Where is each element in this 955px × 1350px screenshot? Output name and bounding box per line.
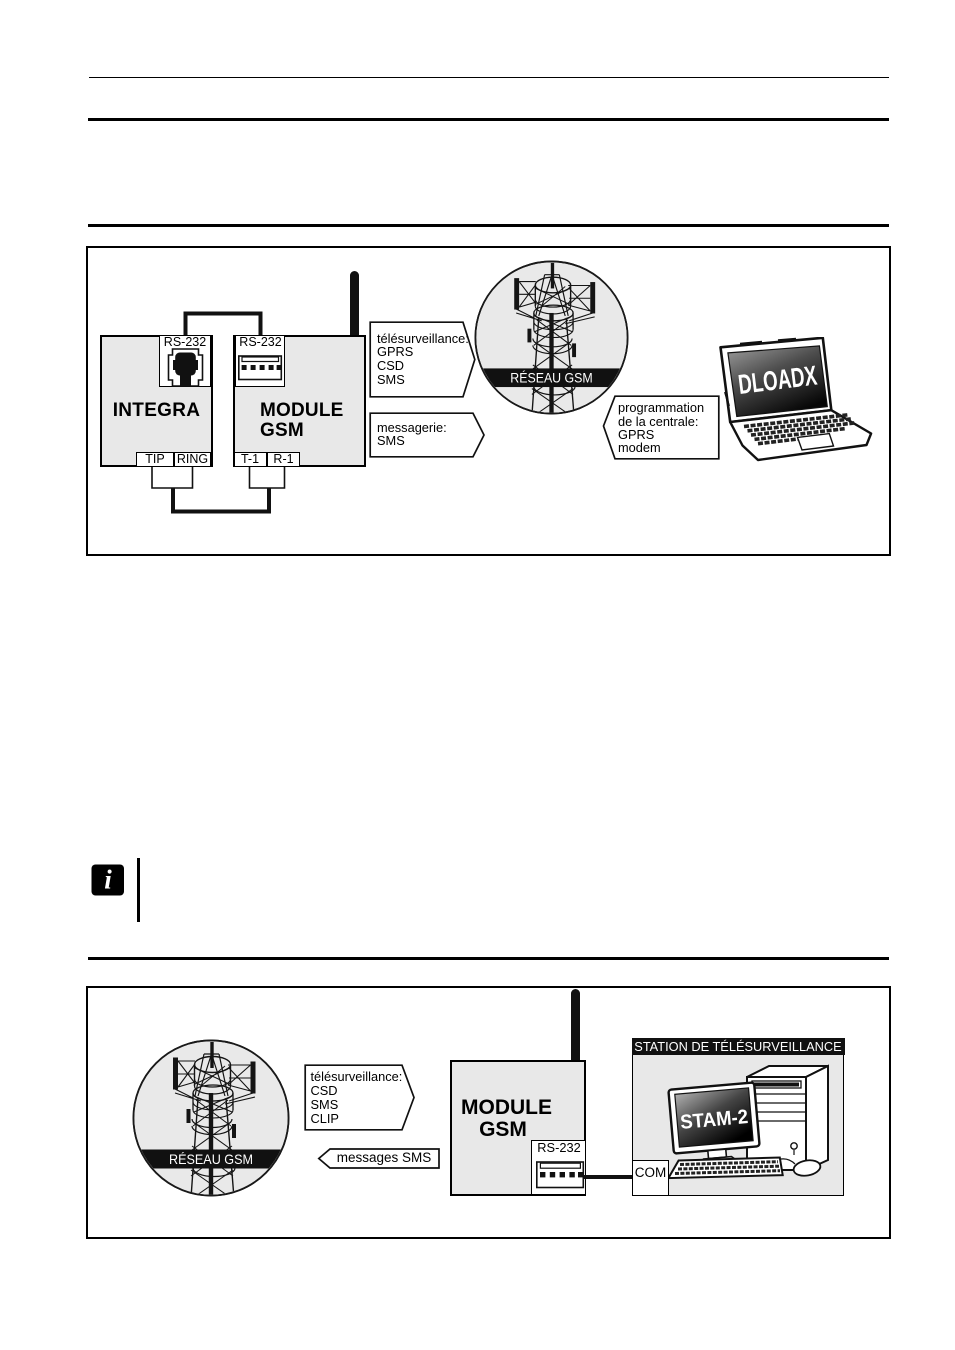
svg-text:i: i — [104, 865, 112, 895]
